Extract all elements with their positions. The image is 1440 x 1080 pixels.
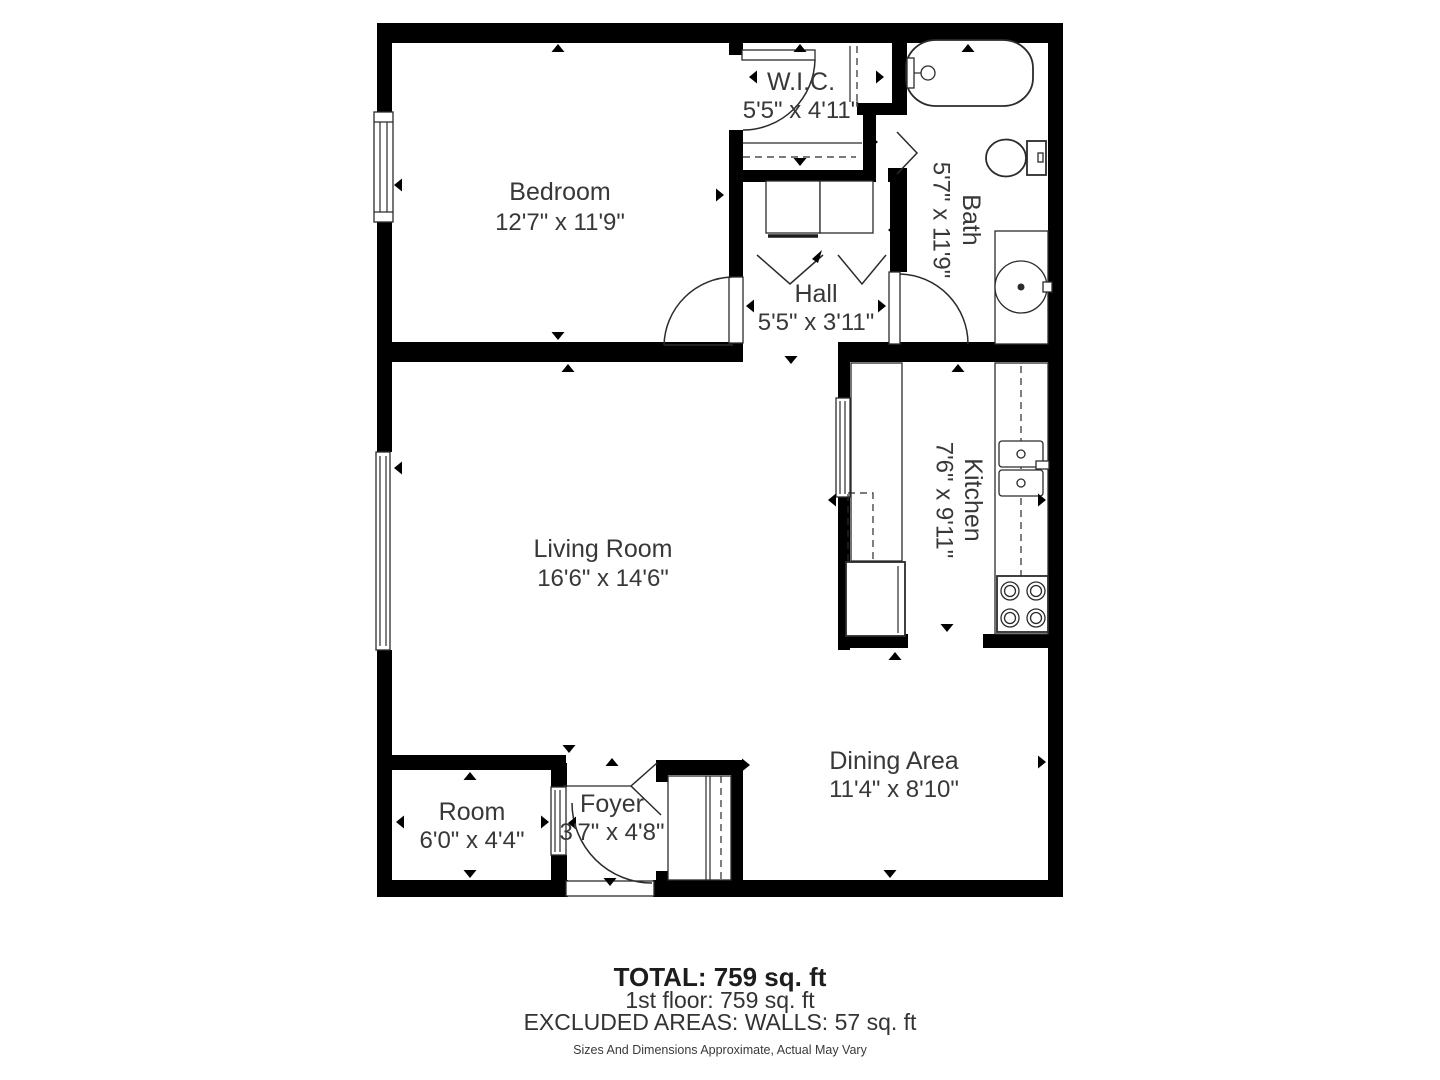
kitchen-counter-left [851, 363, 902, 561]
hall-label: Hall [794, 280, 837, 308]
wall-closet-right [731, 760, 743, 887]
kitchen-label: Kitchen [959, 458, 987, 541]
dining-area-dims: 11'4" x 8'10" [829, 776, 959, 803]
stove [997, 576, 1048, 632]
bath-door [889, 272, 968, 344]
bedroom-door [664, 277, 743, 345]
foyer-closet [668, 776, 731, 880]
wic-label: W.I.C. [767, 68, 835, 96]
bath-bifold-door [897, 132, 917, 174]
wall-hall-top [729, 170, 876, 182]
bath-vanity-sink [995, 231, 1052, 344]
wall-bottom-left [377, 880, 568, 897]
living-room-label: Living Room [534, 535, 673, 563]
wall-left-2 [377, 222, 392, 452]
hall-closet-shelves [766, 181, 873, 236]
wall-room-top [377, 755, 566, 770]
wall-kitchen-left-a [838, 362, 850, 398]
wall-wic-bath-a [892, 23, 907, 115]
wall-closet-left-a [656, 760, 668, 782]
bath-dims: 5'7" x 11'9" [928, 162, 955, 279]
bath-label: Bath [957, 194, 985, 245]
room-dims: 6'0" x 4'4" [420, 827, 525, 854]
summary: TOTAL: 759 sq. ft 1st floor: 759 sq. ft … [524, 962, 917, 1057]
foyer-label: Foyer [580, 790, 644, 818]
bedroom-window [374, 112, 393, 222]
hall-closet-bifold-doors [757, 250, 886, 284]
living-room-window [376, 452, 390, 650]
wall-closet-left-b [656, 871, 668, 885]
room-label: Room [439, 798, 506, 826]
wall-left-1 [377, 23, 392, 112]
refrigerator [846, 562, 905, 636]
wic-dims: 5'5" x 4'11" [743, 97, 860, 124]
living-room-dims: 16'6" x 14'6" [537, 565, 669, 592]
dining-area-label: Dining Area [829, 747, 958, 775]
wall-room-right-b [551, 855, 567, 880]
wall-bath-bottom [838, 342, 1063, 362]
wall-wic-bath-b [857, 103, 907, 115]
wall-closet-top [656, 760, 743, 775]
hall-dims: 5'5" x 3'11" [758, 309, 875, 336]
wall-hall-right-a [890, 170, 907, 272]
kitchen-passthrough-window [836, 398, 850, 497]
wall-bedroom-right-a [729, 43, 743, 55]
wall-left-3 [377, 650, 392, 897]
bedroom-label: Bedroom [509, 178, 610, 206]
toilet [986, 140, 1046, 177]
disclaimer-text: Sizes And Dimensions Approximate, Actual… [573, 1043, 867, 1057]
wall-bedroom-right-b [729, 130, 743, 277]
bedroom-dims: 12'7" x 11'9" [495, 209, 625, 236]
excluded-areas-text: EXCLUDED AREAS: WALLS: 57 sq. ft [524, 1009, 917, 1035]
floor-plan: Bedroom 12'7" x 11'9" W.I.C. 5'5" x 4'11… [0, 0, 1440, 1080]
wall-room-right-a [551, 763, 567, 787]
wall-bottom-right [653, 880, 1063, 897]
foyer-dims: 3'7" x 4'8" [560, 819, 665, 846]
kitchen-dims: 7'6" x 9'11" [931, 442, 958, 559]
wall-right [1048, 23, 1063, 897]
wall-kitchen-bottom-b [983, 634, 1063, 648]
